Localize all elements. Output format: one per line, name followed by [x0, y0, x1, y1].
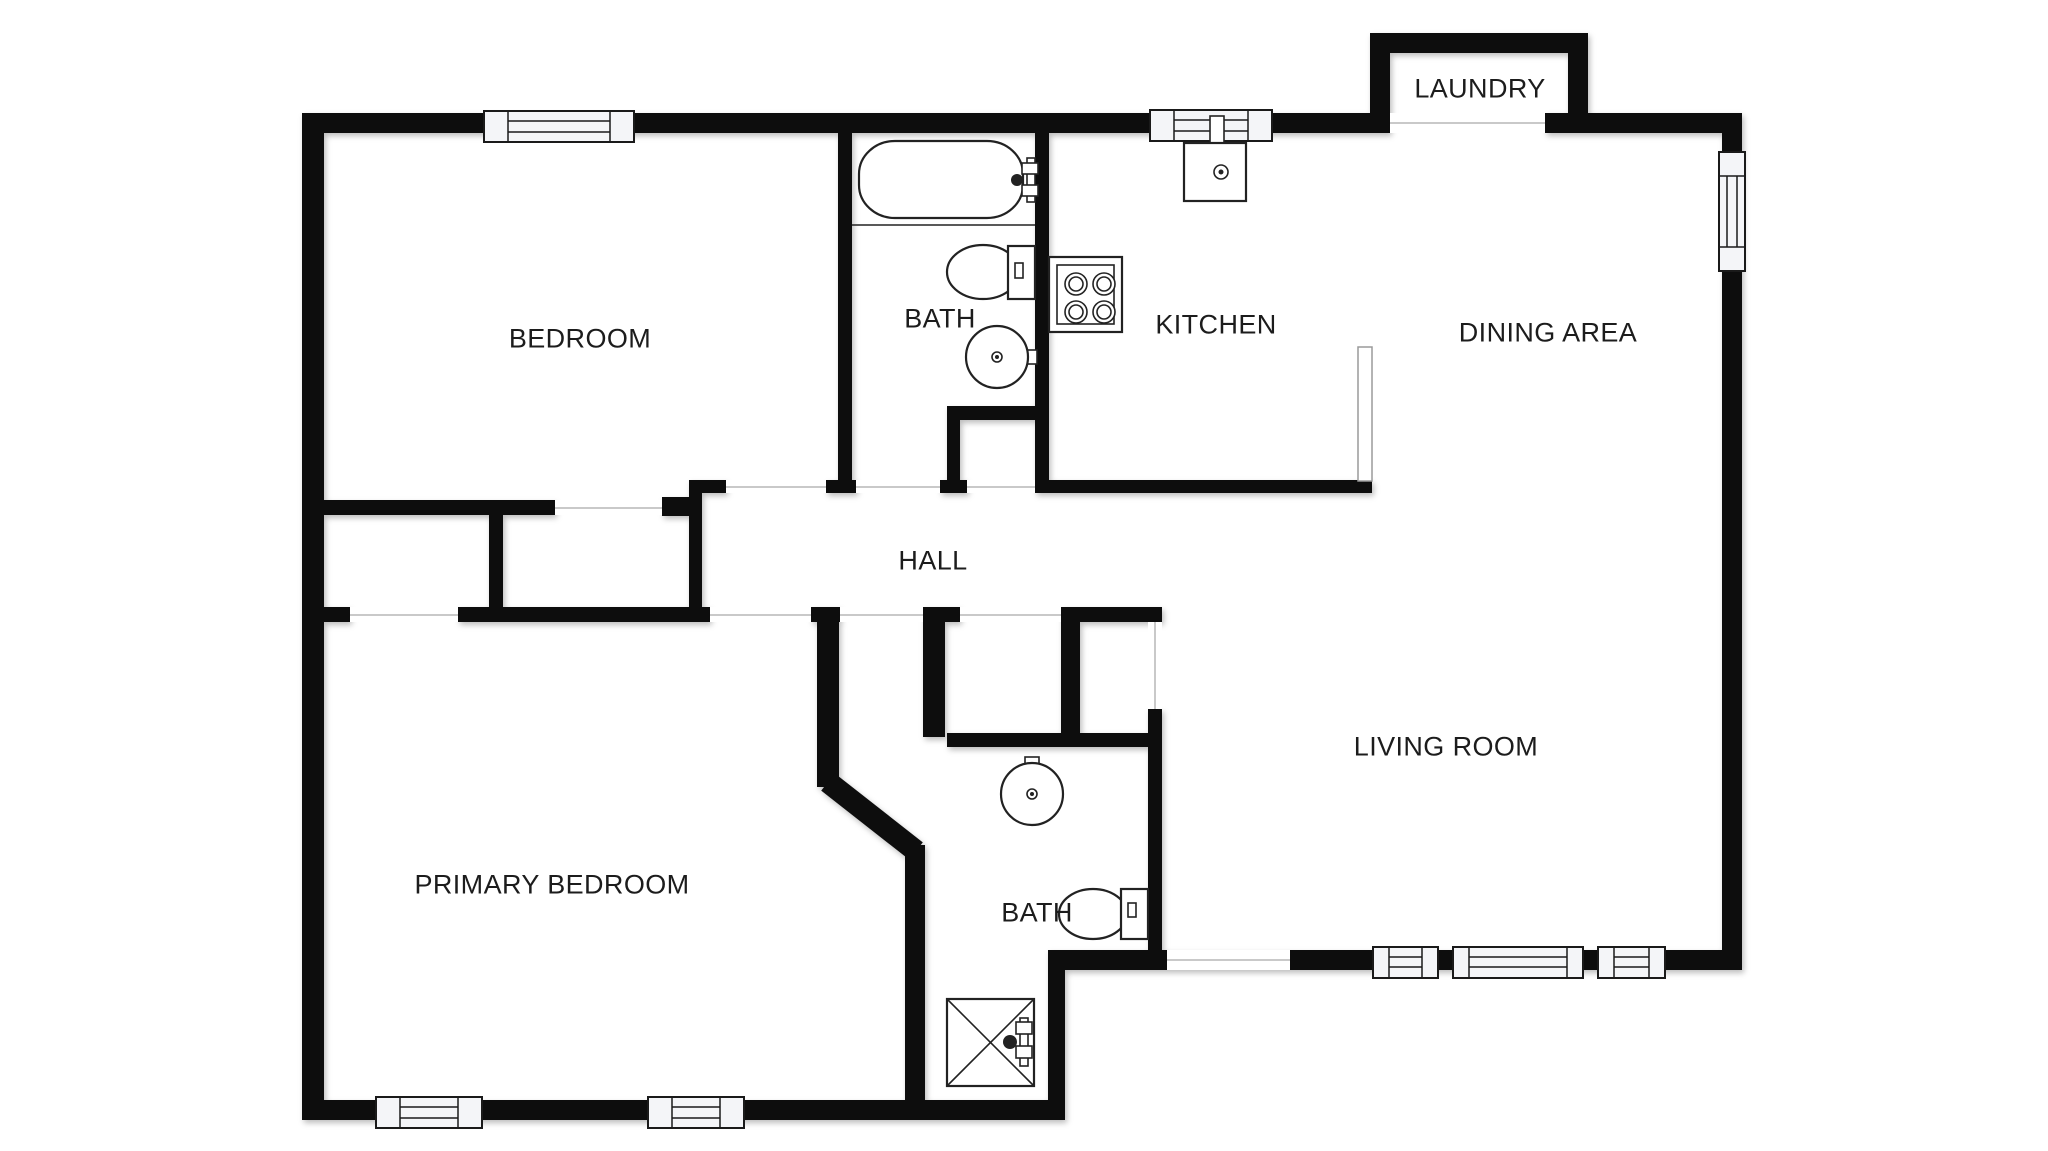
room-label-dining-area: DINING AREA [1459, 317, 1637, 347]
window-dining-east [1719, 152, 1745, 271]
wall-hall-bottom-stub-1 [811, 607, 840, 622]
wall-bath-notch-foot [940, 480, 967, 493]
wall-living-west [1148, 709, 1162, 950]
wall-bedroom-bath-cap [826, 480, 856, 493]
shower-faucet-valve-1 [1016, 1022, 1032, 1034]
bathtub-faucet-valve-1 [1022, 163, 1038, 174]
wall-hall-west [689, 493, 702, 622]
room-label-bedroom: BEDROOM [509, 323, 651, 353]
shower-head [1003, 1035, 1017, 1049]
bathtub-spout [1011, 174, 1023, 186]
wall-hall-bottom-stub-2 [923, 607, 960, 622]
room-label-living-room: LIVING ROOM [1354, 731, 1538, 761]
toilet2-tank-slot [1128, 903, 1136, 917]
doors-layer [350, 113, 1545, 970]
wall-bedroom-bath [838, 133, 852, 482]
wall-bedroom-south-1 [324, 500, 489, 515]
wall-kitchen-south [1049, 480, 1372, 493]
sink1-drain-dot [995, 355, 999, 359]
window-living-2 [1453, 947, 1583, 978]
wall-bath-notch-side [947, 406, 960, 493]
wall-exterior-top-right [1545, 113, 1742, 133]
fixtures-layer [852, 116, 1372, 1086]
window-bedroom [484, 111, 634, 142]
floor-plan: BEDROOMBATHKITCHENLAUNDRYDINING AREAHALL… [0, 0, 2048, 1151]
wall-bath-notch-top [947, 406, 1049, 420]
room-label-bath-2: BATH [1001, 897, 1073, 927]
kitchen-sink-drain-dot [1219, 170, 1224, 175]
wall-exterior-left [302, 113, 324, 1120]
wall-closetB-top [1061, 607, 1162, 622]
wall-closetA-west [923, 620, 945, 737]
window-primary-1 [376, 1097, 482, 1128]
window-living-3 [1598, 947, 1665, 978]
window-living-1 [1373, 947, 1438, 978]
wall-diagonal [828, 782, 916, 851]
bathtub-faucet-valve-2 [1022, 185, 1038, 196]
wall-exterior-step [1048, 950, 1065, 1120]
kitchen-counter [1358, 347, 1372, 481]
stove-burner-2-inner [1097, 277, 1111, 291]
toilet1-tank-slot [1015, 263, 1023, 278]
room-label-laundry: LAUNDRY [1414, 73, 1545, 103]
wall-laundry-top [1370, 33, 1588, 53]
wall-closetAB-divider [1061, 620, 1080, 747]
room-label-hall: HALL [898, 545, 967, 575]
room-label-bath-1: BATH [904, 303, 976, 333]
wall-closets-bottom-1 [324, 607, 350, 622]
sink2-drain-dot [1030, 792, 1034, 796]
stove-burner-3-inner [1069, 305, 1083, 319]
wall-closet-divider [489, 500, 503, 620]
wall-bath2-north [947, 733, 1157, 747]
wall-bedroom-south-2 [503, 500, 555, 515]
window-primary-2 [648, 1097, 744, 1128]
wall-bath2-west [905, 845, 925, 1100]
wall-bedroom-door-jamb [662, 497, 689, 516]
room-label-kitchen: KITCHEN [1155, 309, 1276, 339]
room-label-primary-bedroom: PRIMARY BEDROOM [414, 869, 689, 899]
wall-hall-top-piece [689, 480, 726, 493]
wall-closets-bottom-2 [458, 607, 710, 622]
bathtub [859, 141, 1023, 218]
shower-faucet-valve-2 [1016, 1046, 1032, 1058]
floor-plan-canvas: BEDROOMBATHKITCHENLAUNDRYDINING AREAHALL… [0, 0, 2048, 1151]
wall-vestibule-west [817, 620, 839, 787]
stove-burner-4-inner [1097, 305, 1111, 319]
stove-burner-1-inner [1069, 277, 1083, 291]
